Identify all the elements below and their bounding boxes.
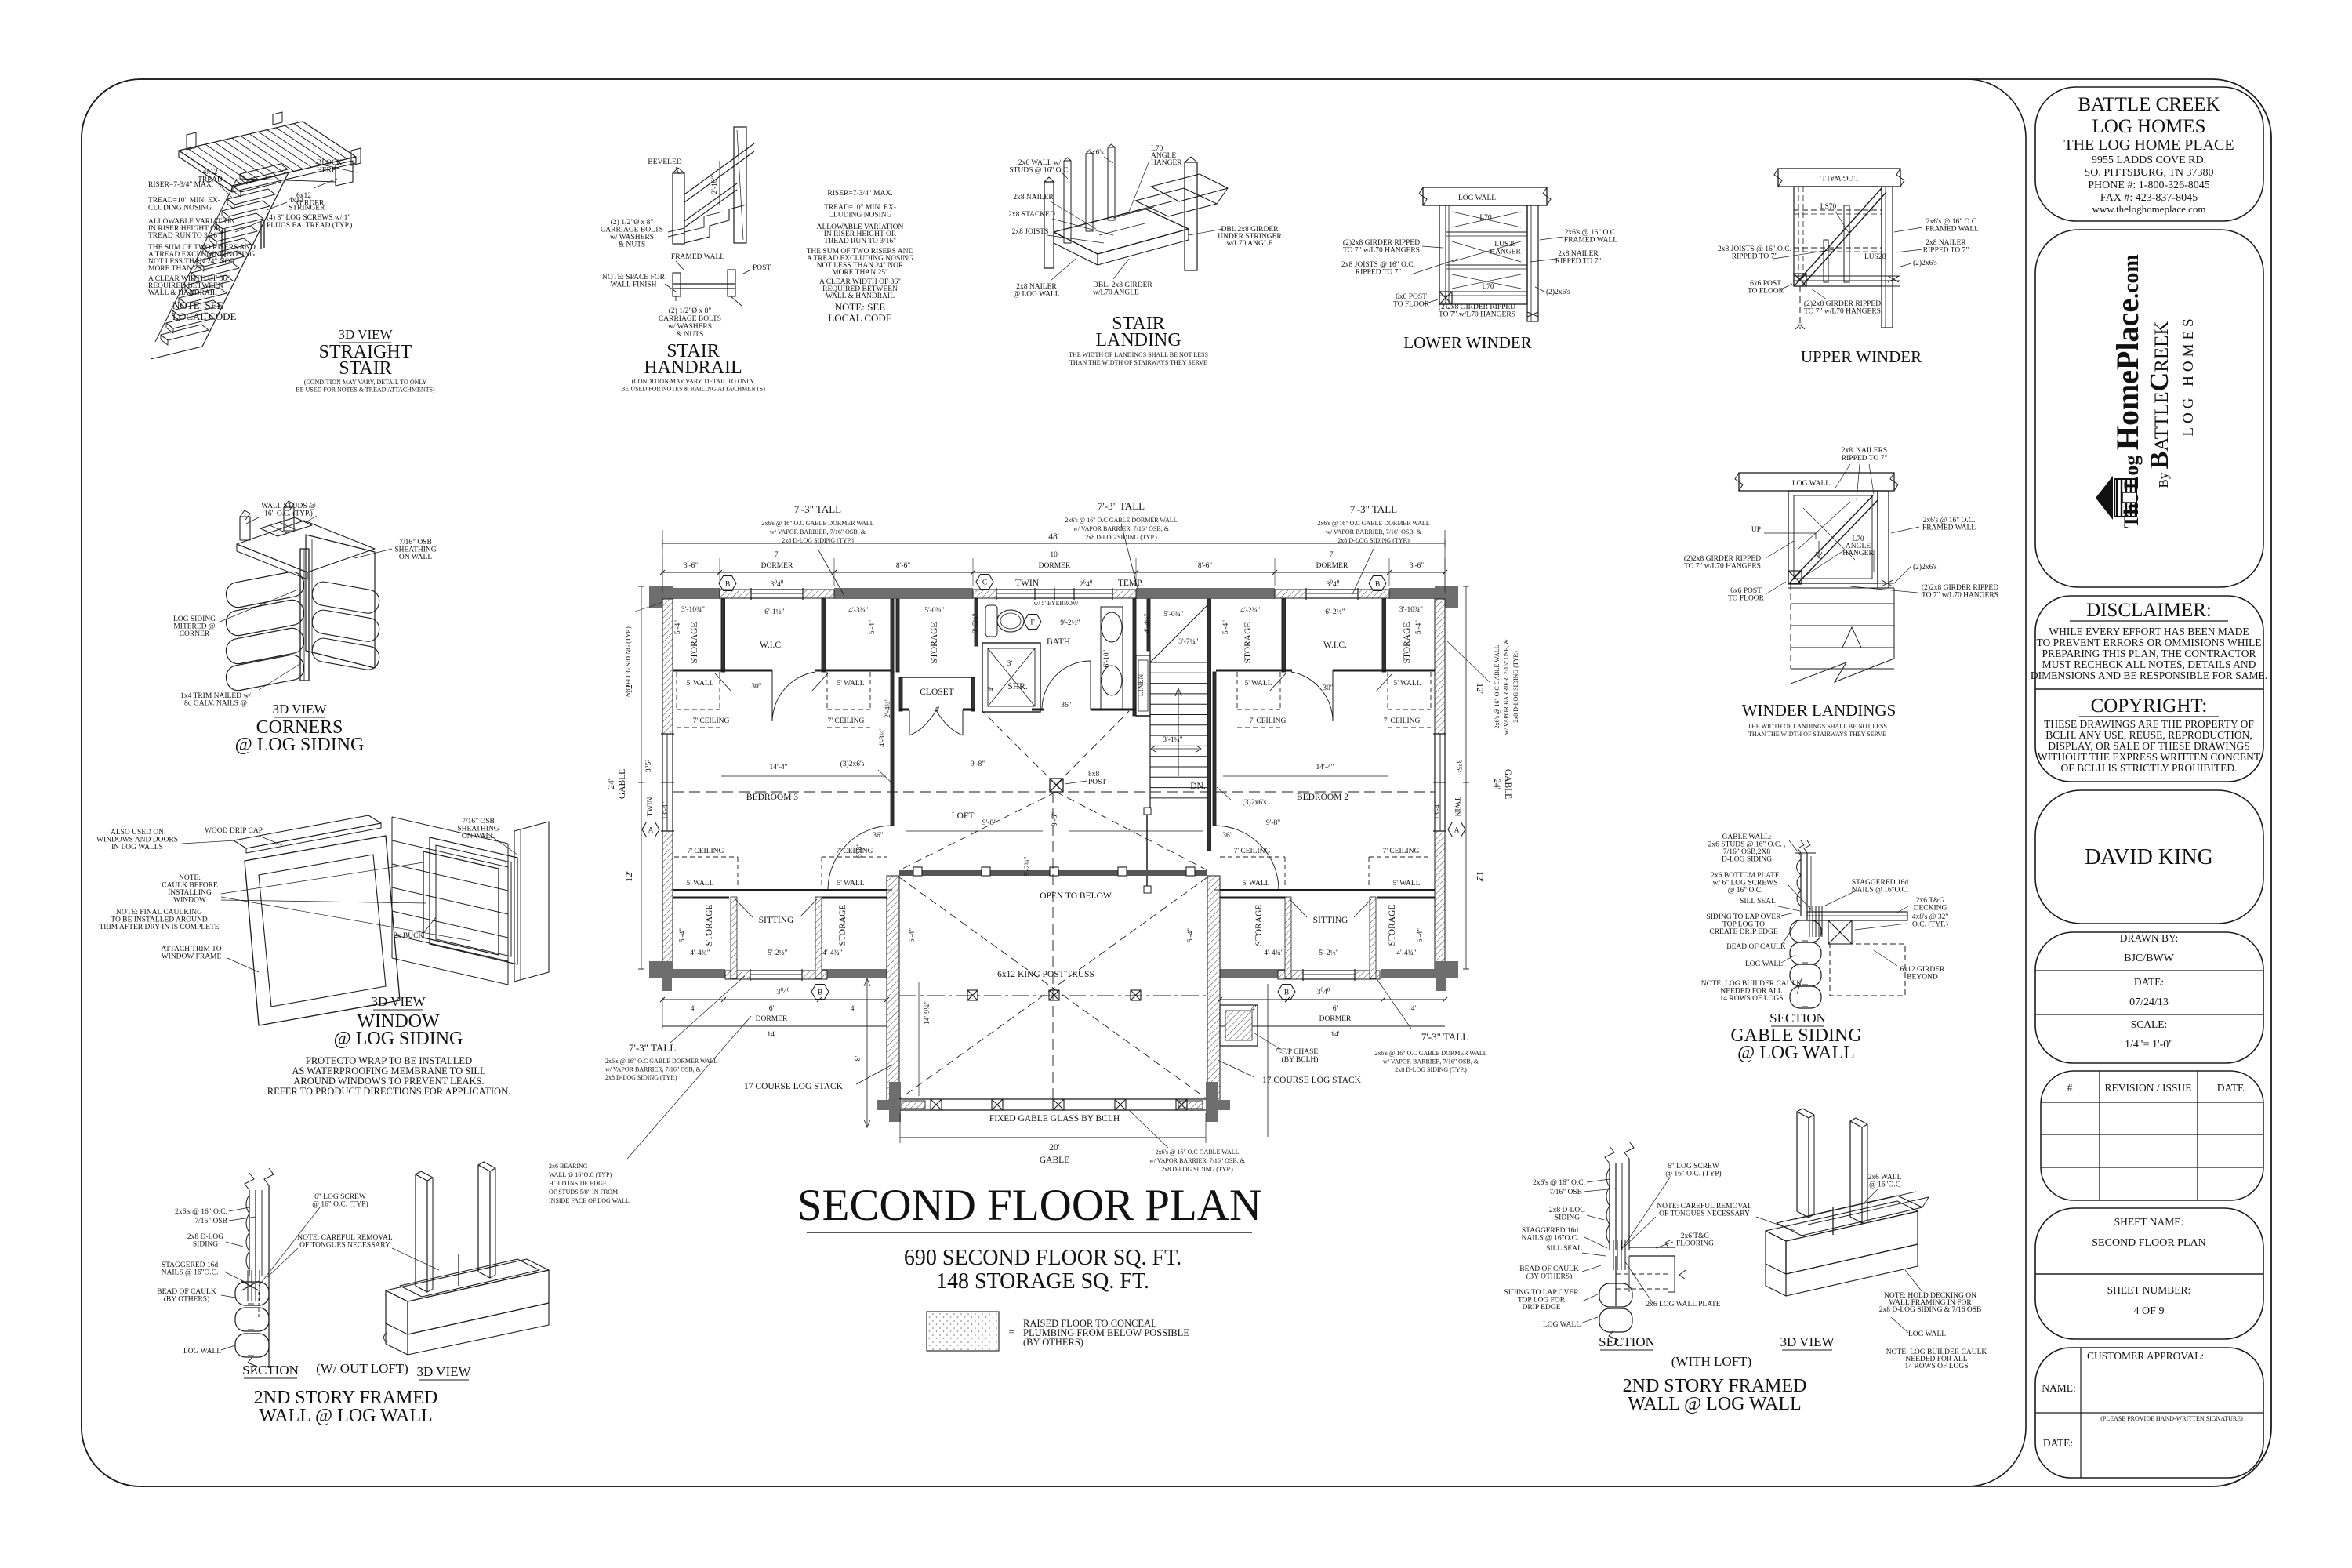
svg-text:SECTION: SECTION xyxy=(1599,1334,1655,1349)
svg-text:7'-3" TALL: 7'-3" TALL xyxy=(794,503,841,515)
svg-text:BATH: BATH xyxy=(1047,637,1070,647)
svg-text:14 ROWS OF LOGS: 14 ROWS OF LOGS xyxy=(1719,995,1783,1003)
svg-text:7' CEILING: 7' CEILING xyxy=(828,717,865,725)
svg-text:SIDING: SIDING xyxy=(1555,1214,1580,1222)
svg-text:LANDING: LANDING xyxy=(1095,330,1181,350)
svg-text:(BY OTHERS): (BY OTHERS) xyxy=(164,1295,210,1304)
svg-text:7' CEILING: 7' CEILING xyxy=(837,848,873,855)
svg-text:POST: POST xyxy=(1088,779,1106,786)
svg-text:SILL SEAL: SILL SEAL xyxy=(1546,1245,1582,1253)
svg-text:12': 12' xyxy=(1475,871,1484,882)
svg-text:NOTE: SEE: NOTE: SEE xyxy=(172,299,223,311)
svg-text:9955 LADDS COVE RD.: 9955 LADDS COVE RD. xyxy=(2092,154,2206,166)
svg-text:3'-6": 3'-6" xyxy=(1410,562,1424,570)
svg-text:4'-3¼": 4'-3¼" xyxy=(879,727,887,747)
svg-text:OPEN TO BELOW: OPEN TO BELOW xyxy=(1040,891,1112,901)
svg-text:THAN THE WIDTH OF STAIRWAYS TH: THAN THE WIDTH OF STAIRWAYS THEY SERVE xyxy=(1748,731,1886,738)
svg-text:48': 48' xyxy=(1048,532,1059,542)
svg-text:9'-8": 9'-8" xyxy=(1266,819,1280,827)
svg-text:9'-8": 9'-8" xyxy=(982,819,996,827)
svg-text:TREAD RUN TO 3/16": TREAD RUN TO 3/16" xyxy=(148,232,220,240)
svg-text:7'-3" TALL: 7'-3" TALL xyxy=(629,1042,676,1054)
svg-text:2x8 D-LOG SIDING (TYP.): 2x8 D-LOG SIDING (TYP.) xyxy=(1395,1066,1467,1073)
svg-text:(3)2x6's: (3)2x6's xyxy=(1243,798,1267,807)
svg-text:3'-6": 3'-6" xyxy=(684,562,698,570)
svg-text:DATE: DATE xyxy=(2217,1082,2245,1094)
svg-text:TO BE INSTALLED AROUND: TO BE INSTALLED AROUND xyxy=(111,916,207,924)
svg-text:SIDING TO LAP OVER: SIDING TO LAP OVER xyxy=(1504,1289,1579,1297)
svg-text:LOG WALL: LOG WALL xyxy=(1908,1330,1946,1338)
svg-text:BEDROOM 3: BEDROOM 3 xyxy=(746,793,798,802)
svg-text:4'-3¾": 4'-3¾" xyxy=(848,607,869,615)
svg-text:BEVELED: BEVELED xyxy=(648,158,681,166)
svg-text:w/ WASHERS: w/ WASHERS xyxy=(668,323,712,331)
svg-text:7' CEILING: 7' CEILING xyxy=(1383,848,1420,855)
svg-text:4'-4¾": 4'-4¾" xyxy=(1264,949,1284,957)
svg-text:GABLE: GABLE xyxy=(1503,769,1512,799)
svg-text:w/L70 ANGLE: w/L70 ANGLE xyxy=(1093,289,1139,297)
svg-text:5'-4": 5'-4" xyxy=(679,928,687,942)
svg-text:(2)2x6's: (2)2x6's xyxy=(1546,288,1570,296)
svg-text:14'-4": 14'-4" xyxy=(769,764,787,771)
svg-text:SITTING: SITTING xyxy=(759,916,794,925)
svg-text:17 COURSE LOG STACK: 17 COURSE LOG STACK xyxy=(1262,1076,1362,1085)
svg-text:L70: L70 xyxy=(1479,214,1492,222)
svg-text:RIPPED TO 7": RIPPED TO 7" xyxy=(1923,247,1969,255)
svg-text:4': 4' xyxy=(1411,1005,1417,1013)
svg-text:WHILE EVERY EFFORT HAS BEEN MA: WHILE EVERY EFFORT HAS BEEN MADE xyxy=(2049,626,2249,637)
svg-text:DISPLAY, OR SALE OF THESE DRAW: DISPLAY, OR SALE OF THESE DRAWINGS xyxy=(2048,740,2249,752)
svg-text:LOG WALL: LOG WALL xyxy=(1745,960,1783,968)
svg-text:7'-3" TALL: 7'-3" TALL xyxy=(1421,1031,1468,1043)
svg-text:4'-4¾": 4'-4¾" xyxy=(822,949,843,957)
svg-text:LOG WALL: LOG WALL xyxy=(1792,480,1830,488)
svg-text:5'-4": 5'-4" xyxy=(1415,620,1423,634)
svg-text:2x8 D-LOG SIDING (TYP.): 2x8 D-LOG SIDING (TYP.) xyxy=(1338,537,1410,544)
svg-text:3D VIEW: 3D VIEW xyxy=(272,702,327,717)
svg-text:@ LOG WALL: @ LOG WALL xyxy=(1013,291,1059,299)
svg-text:TREAD=10" MIN. EX-: TREAD=10" MIN. EX- xyxy=(824,204,896,212)
svg-text:WALL & HANDRAIL: WALL & HANDRAIL xyxy=(826,292,895,300)
svg-text:2x8' NAILERS: 2x8' NAILERS xyxy=(1842,447,1887,455)
svg-text:THE LOG HOME PLACE: THE LOG HOME PLACE xyxy=(2063,136,2234,154)
svg-text:2x6 BOTTOM PLATE: 2x6 BOTTOM PLATE xyxy=(1711,872,1780,880)
svg-text:1x4 TRIM NAILED w/: 1x4 TRIM NAILED w/ xyxy=(180,692,251,700)
svg-text:COPYRIGHT:: COPYRIGHT: xyxy=(2091,695,2208,717)
svg-text:2x8 D-LOG SIDING & 7/16 OSB: 2x8 D-LOG SIDING & 7/16 OSB xyxy=(1879,1306,1982,1314)
svg-text:9'-8": 9'-8" xyxy=(971,760,985,768)
svg-text:CLUDING NOSING: CLUDING NOSING xyxy=(148,205,212,212)
svg-text:5'-4": 5'-4" xyxy=(1187,928,1195,942)
svg-text:MUST RECHECK ALL NOTES, DETAIL: MUST RECHECK ALL NOTES, DETAILS AND xyxy=(2042,659,2256,670)
svg-text:O.C. (TYP.): O.C. (TYP.) xyxy=(1912,920,1948,929)
svg-text:LOG HOMES: LOG HOMES xyxy=(2092,116,2205,137)
svg-text:C: C xyxy=(982,579,987,586)
svg-text:FRAMED WALL: FRAMED WALL xyxy=(1922,524,1976,532)
svg-text:HERE: HERE xyxy=(317,167,336,175)
svg-text:12': 12' xyxy=(625,871,634,882)
svg-text:DECKING: DECKING xyxy=(1914,905,1947,913)
svg-text:(2)2x8 GIRDER RIPPED: (2)2x8 GIRDER RIPPED xyxy=(1439,303,1515,311)
svg-text:2x8 JOISTS @ 16" O.C.: 2x8 JOISTS @ 16" O.C. xyxy=(1718,245,1791,253)
svg-text:@ LOG WALL: @ LOG WALL xyxy=(1737,1043,1855,1063)
svg-text:BEAD OF CAULK: BEAD OF CAULK xyxy=(157,1288,216,1296)
svg-text:TWIN: TWIN xyxy=(1453,797,1461,817)
svg-text:2x6's @ 16" O.C GABLE DORMER W: 2x6's @ 16" O.C GABLE DORMER WALL xyxy=(1065,517,1177,524)
svg-text:w/ VAPOR BARRIER, 7/16" OSB, &: w/ VAPOR BARRIER, 7/16" OSB, & xyxy=(1149,1157,1246,1164)
svg-text:2x6's @ 16" O.C GABLE WALL: 2x6's @ 16" O.C GABLE WALL xyxy=(1494,644,1501,728)
svg-text:B: B xyxy=(725,580,730,588)
svg-text:SHEET NUMBER:: SHEET NUMBER: xyxy=(2107,1284,2191,1296)
svg-text:BEAD OF CAULK: BEAD OF CAULK xyxy=(1726,943,1786,951)
svg-text:NAILS @ 16"O.C.: NAILS @ 16"O.C. xyxy=(1522,1235,1579,1243)
svg-text:FAX #: 423-837-8045: FAX #: 423-837-8045 xyxy=(2100,192,2198,204)
svg-text:w/L70 ANGLE: w/L70 ANGLE xyxy=(1227,240,1273,248)
svg-text:w/ VAPOR BARRIER, 7/16" OSB, &: w/ VAPOR BARRIER, 7/16" OSB, & xyxy=(1383,1058,1479,1065)
svg-text:AROUND WINDOWS TO PREVENT LEAK: AROUND WINDOWS TO PREVENT LEAKS. xyxy=(293,1076,484,1087)
svg-text:w/ VAPOR BARRIER, 7/16" OSB, &: w/ VAPOR BARRIER, 7/16" OSB, & xyxy=(605,1066,702,1073)
svg-text:F: F xyxy=(1030,619,1034,626)
svg-text:STAIR: STAIR xyxy=(339,358,391,379)
svg-text:2x6's @ 16" O.C.: 2x6's @ 16" O.C. xyxy=(1923,517,1976,524)
svg-text:w/ 5' EYEBROW: w/ 5' EYEBROW xyxy=(1034,600,1079,607)
svg-text:TO FLOOR: TO FLOOR xyxy=(1393,301,1430,309)
svg-text:HOLD INSIDE EDGE: HOLD INSIDE EDGE xyxy=(549,1180,607,1187)
svg-text:& NUTS: & NUTS xyxy=(619,241,646,249)
svg-text:RISER=7-3/4" MAX.: RISER=7-3/4" MAX. xyxy=(827,190,892,198)
svg-text:TO 7" w/L70 HANGERS: TO 7" w/L70 HANGERS xyxy=(1804,308,1881,316)
svg-text:SITTING: SITTING xyxy=(1313,916,1348,925)
svg-text:CLOSET: CLOSET xyxy=(920,688,953,697)
svg-text:STORAGE: STORAGE xyxy=(690,622,699,664)
svg-text:2x8 NAILER: 2x8 NAILER xyxy=(1016,283,1057,291)
svg-text:LOG WALL: LOG WALL xyxy=(183,1348,221,1356)
svg-text:LOFT: LOFT xyxy=(952,811,975,821)
svg-text:2x6 WALL w/: 2x6 WALL w/ xyxy=(1018,159,1062,167)
svg-text:2x6 LOG WALL PLATE: 2x6 LOG WALL PLATE xyxy=(1646,1301,1720,1308)
svg-text:POST: POST xyxy=(753,264,771,272)
svg-text:5' WALL: 5' WALL xyxy=(1244,680,1272,688)
svg-text:IN LOG WALLS: IN LOG WALLS xyxy=(111,844,163,851)
svg-text:7' CEILING: 7' CEILING xyxy=(688,848,724,855)
svg-text:TEMP.: TEMP. xyxy=(1118,579,1143,588)
svg-text:2x BUCK: 2x BUCK xyxy=(394,932,423,940)
svg-text:14'-9¼": 14'-9¼" xyxy=(924,1001,931,1025)
svg-text:w/ 6" LOG SCREWS: w/ 6" LOG SCREWS xyxy=(1713,880,1778,887)
svg-text:INSTALLING: INSTALLING xyxy=(168,889,212,897)
svg-text:STORAGE: STORAGE xyxy=(1254,905,1264,946)
svg-text:SO. PITTSBURG, TN 37380: SO. PITTSBURG, TN 37380 xyxy=(2084,167,2213,179)
svg-text:TO 7" w/L70 HANGERS: TO 7" w/L70 HANGERS xyxy=(1922,592,1998,600)
svg-text:STORAGE: STORAGE xyxy=(1403,622,1412,664)
svg-text:2x6's @ 16" O.C.: 2x6's @ 16" O.C. xyxy=(1533,1179,1585,1187)
svg-text:w/ WASHERS: w/ WASHERS xyxy=(610,234,654,241)
svg-text:ATTACH TRIM TO: ATTACH TRIM TO xyxy=(161,946,221,953)
svg-text:WINDOW FRAME: WINDOW FRAME xyxy=(162,953,222,961)
svg-text:#: # xyxy=(2067,1082,2073,1094)
svg-text:F/P CHASE: F/P CHASE xyxy=(1282,1048,1319,1056)
svg-text:6': 6' xyxy=(769,1005,775,1013)
svg-text:14': 14' xyxy=(1330,1031,1340,1039)
svg-text:TREAD=10" MIN. EX-: TREAD=10" MIN. EX- xyxy=(148,197,220,205)
svg-text:4'-4¼": 4'-4¼" xyxy=(1144,613,1152,633)
svg-text:MORE THAN 25": MORE THAN 25" xyxy=(832,269,888,277)
svg-text:SIDING: SIDING xyxy=(193,1241,218,1249)
svg-text:& NUTS: & NUTS xyxy=(677,331,704,339)
svg-text:=: = xyxy=(1008,1326,1014,1338)
svg-text:LOG SIDING: LOG SIDING xyxy=(173,615,216,623)
svg-text:@ LOG SIDING: @ LOG SIDING xyxy=(334,1029,463,1049)
svg-text:TRIM AFTER DRY-IN IS COMPLETE: TRIM AFTER DRY-IN IS COMPLETE xyxy=(99,924,219,931)
svg-text:DISCLAIMER:: DISCLAIMER: xyxy=(2086,600,2212,621)
svg-text:24': 24' xyxy=(1492,779,1501,789)
svg-text:2x8 D-LOG SIDING (TYP.): 2x8 D-LOG SIDING (TYP.) xyxy=(1085,534,1157,541)
svg-text:7' CEILING: 7' CEILING xyxy=(1234,848,1271,855)
svg-text:2x6 STUDS @ 16" O.C. ,: 2x6 STUDS @ 16" O.C. , xyxy=(1708,841,1786,849)
svg-text:CREATE DRIP EDGE: CREATE DRIP EDGE xyxy=(1709,928,1777,936)
svg-text:6x6 POST: 6x6 POST xyxy=(1396,293,1427,301)
svg-text:5'-4": 5'-4" xyxy=(909,928,916,942)
svg-text:7' CEILING: 7' CEILING xyxy=(1384,717,1421,725)
svg-text:THE WIDTH OF LANDINGS SHALL BE: THE WIDTH OF LANDINGS SHALL BE NOT LESS xyxy=(1069,351,1208,358)
svg-text:LINEN: LINEN xyxy=(1138,674,1145,697)
svg-text:3⁰5²: 3⁰5² xyxy=(644,760,653,772)
svg-text:WOOD DRIP CAP: WOOD DRIP CAP xyxy=(205,827,263,835)
svg-text:6x12 KING POST TRUSS: 6x12 KING POST TRUSS xyxy=(997,970,1094,979)
svg-text:GABLE: GABLE xyxy=(618,769,627,799)
svg-text:4'-2¾": 4'-2¾" xyxy=(1240,607,1261,615)
svg-text:TO 7" w/L70 HANGERS: TO 7" w/L70 HANGERS xyxy=(1343,247,1420,255)
svg-text:5'-4": 5'-4" xyxy=(674,620,682,634)
svg-text:STAGGERED 16d: STAGGERED 16d xyxy=(1852,879,1909,887)
svg-text:7'-3" TALL: 7'-3" TALL xyxy=(1098,500,1145,512)
svg-text:5' WALL: 5' WALL xyxy=(1242,880,1269,887)
svg-text:7/16" OSB: 7/16" OSB xyxy=(399,539,432,546)
svg-text:2x8 STACKED: 2x8 STACKED xyxy=(1008,211,1055,219)
svg-text:(2)2x8 GIRDER RIPPED: (2)2x8 GIRDER RIPPED xyxy=(1804,299,1881,308)
svg-text:LS70: LS70 xyxy=(1820,203,1837,211)
svg-text:7' CEILING: 7' CEILING xyxy=(693,717,730,725)
svg-text:7/16" OSB,2X8: 7/16" OSB,2X8 xyxy=(1723,848,1771,856)
svg-text:(3)2x6's: (3)2x6's xyxy=(840,760,865,768)
svg-text:4x8's @ 32": 4x8's @ 32" xyxy=(1912,913,1949,921)
svg-text:7/16" OSB: 7/16" OSB xyxy=(194,1218,227,1225)
svg-text:TREAD RUN TO 3/16": TREAD RUN TO 3/16" xyxy=(824,238,896,245)
svg-text:6'-1½": 6'-1½" xyxy=(764,608,785,616)
svg-text:@ 16" O.C. (TYP): @ 16" O.C. (TYP) xyxy=(1665,1170,1721,1178)
svg-text:TWIN: TWIN xyxy=(1015,579,1040,588)
svg-text:4': 4' xyxy=(851,1005,856,1013)
svg-text:BJC/BWW: BJC/BWW xyxy=(2124,953,2175,964)
svg-text:INSIDE FACE OF LOG WALL: INSIDE FACE OF LOG WALL xyxy=(549,1197,630,1204)
svg-text:DORMER: DORMER xyxy=(756,1015,788,1023)
svg-text:7/16" OSB: 7/16" OSB xyxy=(1549,1189,1582,1196)
svg-text:2x8 D-LOG SIDING (TYP.): 2x8 D-LOG SIDING (TYP.) xyxy=(605,1074,677,1081)
svg-text:OF TONGUES NECESSARY: OF TONGUES NECESSARY xyxy=(1659,1210,1750,1218)
svg-text:SECOND FLOOR PLAN: SECOND FLOOR PLAN xyxy=(797,1181,1261,1230)
svg-text:WALL @ 16"O.C (TYP): WALL @ 16"O.C (TYP) xyxy=(549,1171,612,1178)
svg-text:MITERED @: MITERED @ xyxy=(173,623,216,631)
svg-text:20': 20' xyxy=(1049,1143,1060,1152)
svg-text:2x6's @ 16" O.C GABLE DORMER W: 2x6's @ 16" O.C GABLE DORMER WALL xyxy=(761,520,873,527)
svg-text:16" O.C. (TYP.): 16" O.C. (TYP.) xyxy=(264,510,313,518)
svg-text:2x8 JOISTS @ 16" O.C.: 2x8 JOISTS @ 16" O.C. xyxy=(1341,261,1415,269)
svg-text:BEDROOM 2: BEDROOM 2 xyxy=(1297,793,1348,802)
svg-text:TO 7" w/L70 HANGERS: TO 7" w/L70 HANGERS xyxy=(1684,563,1761,571)
svg-text:7': 7' xyxy=(775,551,780,559)
svg-text:(2)2x8 GIRDER RIPPED: (2)2x8 GIRDER RIPPED xyxy=(1684,554,1761,563)
svg-text:6'-10": 6'-10" xyxy=(1103,649,1111,667)
svg-text:DN.: DN. xyxy=(1190,782,1206,791)
svg-text:3'-7¼": 3'-7¼" xyxy=(1178,638,1199,646)
svg-text:36": 36" xyxy=(1222,832,1233,840)
svg-text:SECTION: SECTION xyxy=(1769,1011,1826,1025)
svg-text:13'-4": 13'-4" xyxy=(1434,801,1442,819)
svg-text:WALL @ LOG WALL: WALL @ LOG WALL xyxy=(1628,1394,1801,1414)
svg-text:SECOND FLOOR PLAN: SECOND FLOOR PLAN xyxy=(2092,1237,2205,1249)
svg-text:2x6's: 2x6's xyxy=(1088,149,1104,157)
svg-text:OF BCLH IS STRICTLY PROHIBITED: OF BCLH IS STRICTLY PROHIBITED. xyxy=(2060,762,2237,774)
svg-text:2x6's @ 16" O.C GABLE WALL: 2x6's @ 16" O.C GABLE WALL xyxy=(1155,1149,1239,1156)
svg-text:LOG HOMES: LOG HOMES xyxy=(2180,314,2197,436)
svg-text:CARRIAGE BOLTS: CARRIAGE BOLTS xyxy=(601,227,663,234)
svg-text:STAGGERED 16d: STAGGERED 16d xyxy=(162,1261,219,1269)
svg-text:WALL @ LOG WALL: WALL @ LOG WALL xyxy=(259,1406,432,1426)
svg-text:WALL FINISH: WALL FINISH xyxy=(610,281,656,289)
svg-text:DORMER: DORMER xyxy=(1319,1015,1352,1023)
svg-text:5' WALL: 5' WALL xyxy=(686,680,713,688)
svg-text:OF TONGUES NECESSARY: OF TONGUES NECESSARY xyxy=(299,1242,390,1250)
svg-text:5'-2¾": 5'-2¾" xyxy=(1024,856,1032,877)
svg-text:30": 30" xyxy=(1323,684,1334,692)
svg-text:NEEDED FOR ALL: NEEDED FOR ALL xyxy=(1720,988,1782,996)
svg-text:2x8 D-LOG SIDING (TYP.): 2x8 D-LOG SIDING (TYP.) xyxy=(782,537,854,544)
svg-text:WINDOW: WINDOW xyxy=(173,897,206,905)
svg-text:CORNER: CORNER xyxy=(180,630,210,638)
svg-text:DORMER: DORMER xyxy=(761,562,793,570)
svg-text:TO 7" w/L70 HANGERS: TO 7" w/L70 HANGERS xyxy=(1439,311,1515,319)
svg-text:RIPPED TO 7": RIPPED TO 7" xyxy=(1356,269,1402,277)
svg-text:STORAGE: STORAGE xyxy=(705,905,714,946)
svg-text:6x12 GIRDER: 6x12 GIRDER xyxy=(1900,966,1945,974)
svg-text:2x6 WALL: 2x6 WALL xyxy=(1868,1174,1902,1181)
svg-text:L70: L70 xyxy=(1482,283,1494,291)
svg-text:4': 4' xyxy=(691,1005,696,1013)
svg-text:DORMER: DORMER xyxy=(1316,562,1348,570)
svg-text:w/ VAPOR BARRIER, 7/16" OSB, &: w/ VAPOR BARRIER, 7/16" OSB, & xyxy=(1073,525,1170,532)
svg-text:SHR.: SHR. xyxy=(1007,682,1027,691)
svg-text:LOG WALL: LOG WALL xyxy=(1543,1321,1581,1329)
svg-text:2x8 D-LOG SIDING (TYP.): 2x8 D-LOG SIDING (TYP.) xyxy=(1161,1166,1233,1173)
svg-text:2x6's @ 16" O.C GABLE DORMER W: 2x6's @ 16" O.C GABLE DORMER WALL xyxy=(605,1058,717,1065)
svg-text:REVISION / ISSUE: REVISION / ISSUE xyxy=(2104,1082,2191,1094)
svg-text:SHEATHING: SHEATHING xyxy=(394,546,436,554)
svg-text:(CONDITION MAY VARY, DETAIL TO: (CONDITION MAY VARY, DETAIL TO ONLY xyxy=(304,379,427,386)
svg-text:30": 30" xyxy=(751,683,762,691)
svg-text:5'-2½": 5'-2½" xyxy=(768,949,788,957)
svg-text:@ 16"O.C: @ 16"O.C xyxy=(1869,1181,1900,1189)
svg-text:THESE DRAWINGS ARE THE PROPERT: THESE DRAWINGS ARE THE PROPERTY OF xyxy=(2044,718,2254,730)
svg-text:(2)2x6's: (2)2x6's xyxy=(1913,259,1937,267)
svg-text:9'-6": 9'-6" xyxy=(1051,812,1059,826)
svg-text:690 SECOND FLOOR SQ. FT.: 690 SECOND FLOOR SQ. FT. xyxy=(904,1246,1181,1270)
svg-text:6'-2½": 6'-2½" xyxy=(1325,608,1345,616)
svg-text:TO FLOOR: TO FLOOR xyxy=(1748,288,1784,296)
svg-text:5' WALL: 5' WALL xyxy=(686,880,713,887)
svg-text:2x6 T&G: 2x6 T&G xyxy=(1916,897,1945,905)
svg-text:FRAMED WALL: FRAMED WALL xyxy=(1926,226,1979,234)
svg-text:5'-4": 5'-4" xyxy=(1417,928,1425,942)
svg-text:STUDS @ 16" O.C.: STUDS @ 16" O.C. xyxy=(1009,167,1069,175)
svg-text:6" LOG SCREW: 6" LOG SCREW xyxy=(314,1193,366,1201)
svg-text:LOCAL CODE: LOCAL CODE xyxy=(172,310,237,322)
svg-text:4'-4¾": 4'-4¾" xyxy=(1396,949,1417,957)
svg-text:(2)2x8 GIRDER RIPPED: (2)2x8 GIRDER RIPPED xyxy=(1343,238,1420,247)
svg-text:UPPER WINDER: UPPER WINDER xyxy=(1801,347,1922,366)
svg-text:LOWER WINDER: LOWER WINDER xyxy=(1403,333,1532,352)
svg-text:8d GALV. NAILS @: 8d GALV. NAILS @ xyxy=(184,700,247,708)
svg-text:NAME:: NAME: xyxy=(2042,1382,2076,1394)
svg-text:(2) 1/2"Ø x 8": (2) 1/2"Ø x 8" xyxy=(669,307,712,315)
svg-text:3D VIEW: 3D VIEW xyxy=(1780,1334,1835,1349)
svg-text:TWIN: TWIN xyxy=(647,797,655,816)
svg-text:2x6's @ 16" O.C GABLE DORMER W: 2x6's @ 16" O.C GABLE DORMER WALL xyxy=(1317,520,1429,527)
svg-text:AS WATERPROOFING MEMBRANE TO S: AS WATERPROOFING MEMBRANE TO SILL xyxy=(292,1065,485,1076)
svg-text:DATE:: DATE: xyxy=(2043,1437,2073,1449)
svg-text:HANGER: HANGER xyxy=(1842,550,1874,557)
svg-text:PROTECTO WRAP TO BE INSTALLED: PROTECTO WRAP TO BE INSTALLED xyxy=(306,1055,472,1066)
svg-text:6x6 POST: 6x6 POST xyxy=(1730,587,1762,595)
svg-text:STORAGE: STORAGE xyxy=(1243,622,1253,664)
svg-text:36": 36" xyxy=(873,832,884,840)
svg-text:DAVID KING: DAVID KING xyxy=(2085,845,2213,869)
svg-text:5' WALL: 5' WALL xyxy=(837,880,864,887)
svg-text:(2)2x6's: (2)2x6's xyxy=(1913,563,1937,572)
svg-text:NOTE: LOG BUILDER CAULK: NOTE: LOG BUILDER CAULK xyxy=(1701,980,1802,988)
svg-text:SCALE:: SCALE: xyxy=(2131,1018,2168,1030)
svg-text:FRAMED WALL: FRAMED WALL xyxy=(671,253,724,261)
svg-text:@ 16" O.C. (TYP): @ 16" O.C. (TYP) xyxy=(312,1200,368,1209)
svg-text:STORAGE: STORAGE xyxy=(930,622,939,664)
svg-text:CLUDING NOSING: CLUDING NOSING xyxy=(828,212,891,220)
svg-text:5'-0¾": 5'-0¾" xyxy=(1163,611,1184,619)
svg-text:148 STORAGE SQ. FT.: 148 STORAGE SQ. FT. xyxy=(936,1269,1149,1294)
svg-text:B: B xyxy=(1284,989,1289,996)
svg-text:6': 6' xyxy=(1333,1005,1338,1013)
svg-text:2x8 D-LOG: 2x8 D-LOG xyxy=(187,1233,223,1241)
svg-text:2x6 T&G: 2x6 T&G xyxy=(1681,1232,1710,1240)
svg-text:12': 12' xyxy=(1475,683,1484,694)
svg-text:GABLE WALL:: GABLE WALL: xyxy=(1722,833,1772,841)
svg-text:2x8 D-LOG SIDING (TYP.): 2x8 D-LOG SIDING (TYP.) xyxy=(1512,651,1519,723)
svg-text:TOP LOG TO: TOP LOG TO xyxy=(1722,921,1765,929)
svg-text:A: A xyxy=(1454,826,1460,834)
svg-text:4x12: 4x12 xyxy=(203,169,218,176)
svg-text:4x12: 4x12 xyxy=(289,197,303,205)
svg-text:BEAD OF CAULK: BEAD OF CAULK xyxy=(1519,1265,1579,1273)
svg-text:LUS28: LUS28 xyxy=(1494,241,1516,249)
svg-text:10': 10' xyxy=(1050,551,1059,559)
svg-text:BLOCK: BLOCK xyxy=(317,159,342,167)
svg-text:2x6's @ 16" O.C.: 2x6's @ 16" O.C. xyxy=(1565,229,1617,237)
svg-text:SHEET NAME:: SHEET NAME: xyxy=(2114,1216,2184,1228)
svg-text:TO PREVENT ERRORS OR OMMISIONS: TO PREVENT ERRORS OR OMMISIONS WHILE xyxy=(2037,637,2262,648)
svg-text:3D VIEW: 3D VIEW xyxy=(338,327,393,342)
svg-text:(CONDITION MAY VARY, DETAIL TO: (CONDITION MAY VARY, DETAIL TO ONLY xyxy=(632,378,755,385)
svg-text:2'-4¾": 2'-4¾" xyxy=(884,698,892,718)
svg-text:BEYOND: BEYOND xyxy=(1907,974,1938,982)
svg-text:7/16" OSB: 7/16" OSB xyxy=(462,818,495,826)
